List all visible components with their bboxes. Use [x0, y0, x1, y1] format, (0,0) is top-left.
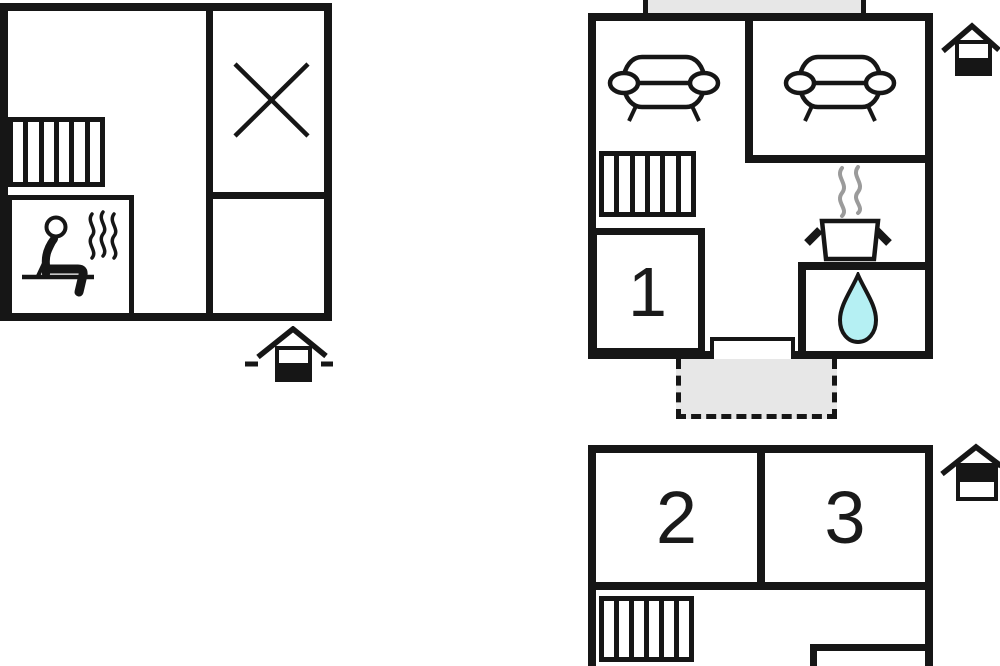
- water-drop-icon: [837, 272, 879, 345]
- house-level-ground-icon: [941, 22, 1000, 76]
- radiator-cell: [681, 156, 691, 212]
- balcony-tick: [861, 0, 866, 14]
- room-2-label: 2: [596, 453, 757, 582]
- radiator-icon: [599, 596, 694, 662]
- closet-wall-horizontal: [810, 644, 926, 651]
- radiator-cell: [635, 156, 645, 212]
- balcony-area: [648, 0, 866, 13]
- terrace-area: [676, 359, 837, 419]
- sink-wall-vertical: [798, 262, 806, 359]
- radiator-cell: [634, 601, 644, 657]
- sink-wall-horizontal: [798, 262, 933, 270]
- ground-interior-wall-vertical: [745, 21, 753, 163]
- steam-icon: [833, 165, 867, 219]
- radiator-cell: [665, 156, 675, 212]
- first-floor-plan: 2 3: [0, 440, 1000, 666]
- house-level-first-icon: [940, 443, 1000, 501]
- radiator-cell: [619, 156, 629, 212]
- closet-wall-vertical: [810, 644, 817, 666]
- ground-interior-wall-horizontal: [745, 155, 925, 163]
- first-interior-wall-vertical: [757, 453, 765, 590]
- radiator-cell: [650, 156, 660, 212]
- radiator-cell: [619, 601, 629, 657]
- radiator-icon: [599, 151, 696, 217]
- radiator-cell: [604, 156, 614, 212]
- balcony-tick: [643, 0, 648, 14]
- radiator-cell: [679, 601, 689, 657]
- sofa-icon: [604, 50, 722, 124]
- radiator-cell: [604, 601, 614, 657]
- floor-plan-canvas: 1 2 3: [0, 0, 1000, 666]
- sofa-icon: [780, 50, 898, 124]
- first-interior-wall-horizontal: [588, 582, 933, 590]
- radiator-cell: [664, 601, 674, 657]
- ground-floor-plan: 1: [0, 0, 1000, 440]
- radiator-cell: [649, 601, 659, 657]
- room-3-label: 3: [765, 453, 925, 582]
- cooking-pot-icon: [800, 217, 896, 263]
- room-1-label: 1: [590, 228, 705, 355]
